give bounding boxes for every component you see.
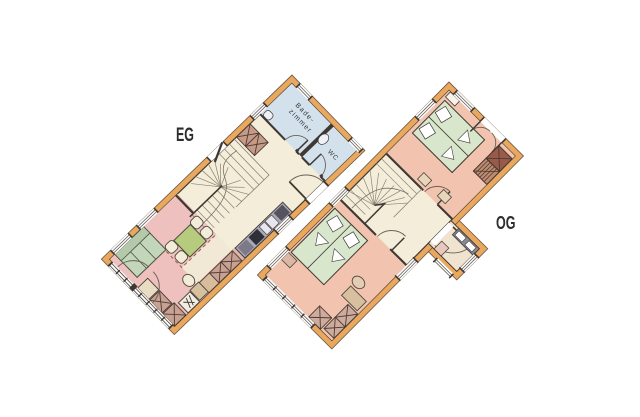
svg-text:OG: OG	[496, 213, 516, 233]
svg-text:EG: EG	[176, 125, 194, 146]
